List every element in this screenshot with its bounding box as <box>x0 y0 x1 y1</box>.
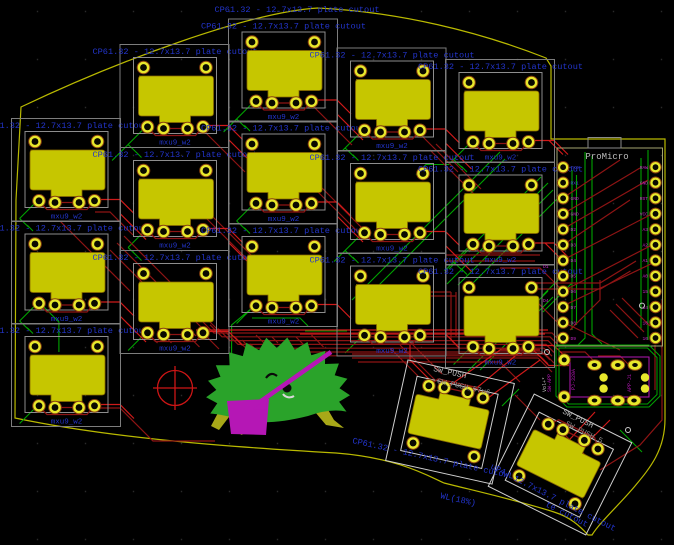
svg-text:D7: D7 <box>571 305 577 311</box>
svg-text:D3: D3 <box>571 243 577 249</box>
svg-text:TX0: TX0 <box>571 165 580 171</box>
svg-text:RAW: RAW <box>640 165 649 171</box>
svg-text:D4: D4 <box>571 258 577 264</box>
svg-text:10: 10 <box>642 336 648 342</box>
svg-text:ProMicro: ProMicro <box>585 152 628 162</box>
svg-text:PJ-320A: PJ-320A <box>571 369 577 390</box>
svg-text:D6: D6 <box>571 289 577 295</box>
svg-text:RST: RST <box>640 196 649 202</box>
svg-text:CP61.32 - 12.7x13.7 plate cuto: CP61.32 - 12.7x13.7 plate cutout <box>214 5 379 15</box>
svg-text:RX1: RX1 <box>571 181 580 187</box>
svg-text:A3: A3 <box>642 227 648 233</box>
svg-text:A1: A1 <box>642 258 648 264</box>
svg-text:GND: GND <box>571 212 580 218</box>
svg-text:D9: D9 <box>571 336 577 342</box>
svg-text:D4: D4 <box>543 298 549 304</box>
svg-text:A2: A2 <box>642 243 648 249</box>
svg-text:D1: D1 <box>543 264 549 270</box>
svg-text:A0: A0 <box>642 274 648 280</box>
svg-text:D2: D2 <box>571 227 577 233</box>
svg-text:D8: D8 <box>571 320 577 326</box>
svg-text:D5: D5 <box>571 274 577 280</box>
svg-text:VCC: VCC <box>640 212 649 218</box>
svg-text:GND: GND <box>640 181 649 187</box>
svg-text:Vol+*: Vol+* <box>542 377 548 392</box>
svg-text:15: 15 <box>642 289 648 295</box>
svg-text:GND: GND <box>571 196 580 202</box>
svg-text:APP-J1: APP-J1 <box>627 374 633 392</box>
svg-text:16: 16 <box>642 320 648 326</box>
